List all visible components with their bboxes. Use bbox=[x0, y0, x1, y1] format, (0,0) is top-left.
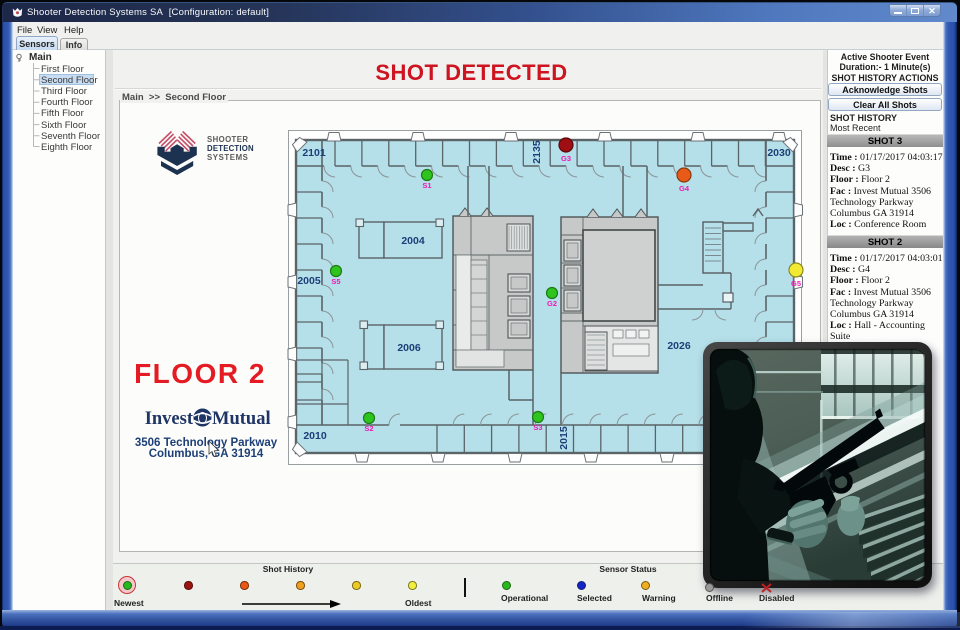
svg-text:S5: S5 bbox=[331, 277, 340, 286]
svg-text:DETECTION: DETECTION bbox=[207, 144, 254, 153]
svg-text:G5: G5 bbox=[791, 279, 801, 288]
svg-text:2101: 2101 bbox=[302, 147, 326, 159]
svg-text:Mutual: Mutual bbox=[212, 409, 271, 429]
svg-text:2010: 2010 bbox=[303, 430, 327, 442]
svg-text:SHOOTER: SHOOTER bbox=[207, 135, 248, 144]
svg-text:2026: 2026 bbox=[667, 340, 691, 352]
svg-text:2015: 2015 bbox=[558, 426, 570, 450]
svg-text:S2: S2 bbox=[364, 424, 373, 433]
svg-text:2006: 2006 bbox=[397, 342, 421, 354]
svg-text:Invest: Invest bbox=[145, 409, 194, 429]
svg-text:2004: 2004 bbox=[401, 235, 425, 247]
svg-text:G3: G3 bbox=[561, 154, 571, 163]
svg-text:S1: S1 bbox=[422, 181, 431, 190]
svg-text:G4: G4 bbox=[679, 184, 690, 193]
svg-text:2030: 2030 bbox=[767, 147, 791, 159]
svg-text:G2: G2 bbox=[547, 299, 557, 308]
svg-text:FLOOR 2: FLOOR 2 bbox=[134, 358, 266, 389]
svg-text:S3: S3 bbox=[533, 423, 542, 432]
svg-text:2005: 2005 bbox=[297, 275, 321, 287]
svg-text:2135: 2135 bbox=[531, 140, 543, 164]
svg-text:Columbus, GA 31914: Columbus, GA 31914 bbox=[149, 448, 264, 460]
svg-text:SYSTEMS: SYSTEMS bbox=[207, 153, 248, 162]
